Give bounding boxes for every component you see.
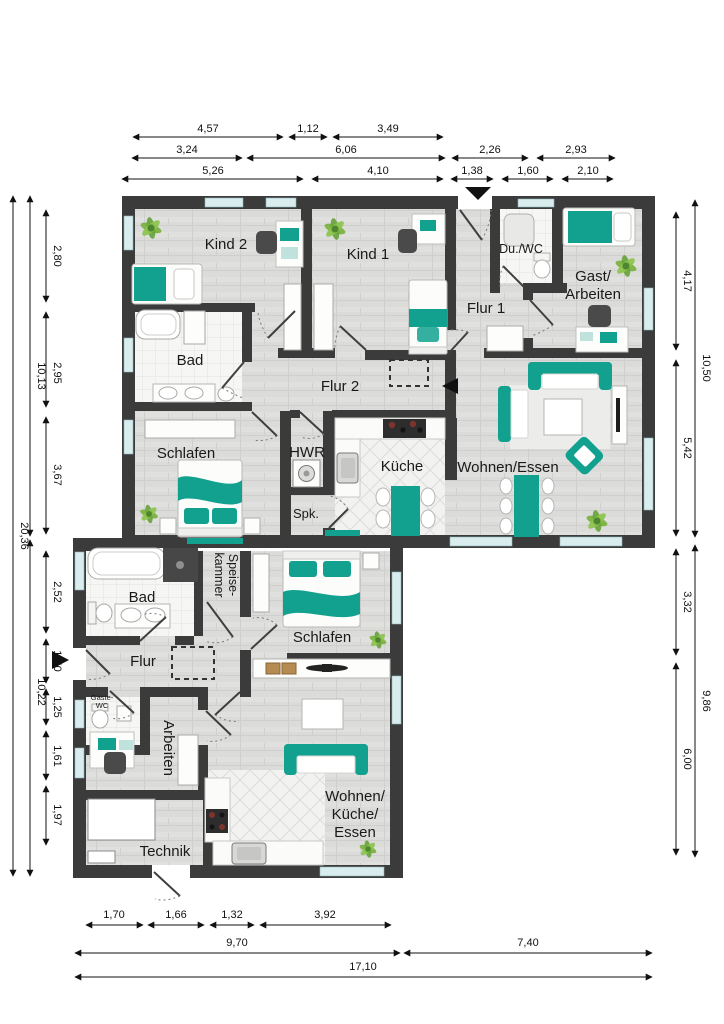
dim-label: 9,86 [700,690,712,711]
dim-label: 1,66 [165,909,186,921]
dim-label: 1,25 [51,696,63,717]
dim-label: 3,49 [377,123,398,135]
kind1-bed [409,280,447,354]
label-duwc: Du./WC [499,242,543,256]
dim-label: 20,36 [18,522,30,550]
label-gast-2: Arbeiten [565,286,621,303]
label-schlafen-upper: Schlafen [157,445,215,462]
label-flur1: Flur 1 [467,300,505,317]
label-kueche: Küche [381,458,424,475]
dim-label: 2,52 [51,581,63,602]
label-schlafen-lower: Schlafen [293,629,351,646]
label-speise-2: kammer [212,552,226,597]
dim-label: 1,97 [51,804,63,825]
dim-label: 1,50 [51,650,63,671]
entrance-arrow-icon [465,187,491,200]
sideboard-tv [253,659,390,678]
gast-bed [563,208,635,246]
label-speise-1: Speise- [226,554,240,596]
dim-label: 1,32 [221,909,242,921]
dim-label: 3,24 [176,144,197,156]
dining-table [514,475,539,537]
wardrobe [487,326,523,351]
dim-label: 3,92 [314,909,335,921]
label-kind1: Kind 1 [347,246,390,263]
wardrobe [284,284,301,350]
label-bad-upper: Bad [177,352,204,369]
label-arbeiten: Arbeiten [160,720,177,776]
dim-label: 3,67 [51,464,63,485]
dim-label: 4,17 [681,270,693,291]
dim-label: 1,70 [103,909,124,921]
dim-label: 2,10 [577,165,598,177]
dining-table [391,486,420,536]
floor-plan: Kind 2 Kind 1 Du./WC Gast/ Arbeiten Flur… [0,0,724,1024]
label-wohnen-essen: Wohnen/Essen [457,459,558,476]
label-kind2: Kind 2 [205,236,248,253]
label-hwr: HWR [289,444,325,461]
dim-label: 1,12 [297,123,318,135]
dim-label: 4,10 [367,165,388,177]
dim-label: 17,10 [349,961,377,973]
dim-label: 9,70 [226,937,247,949]
dim-label: 1,60 [517,165,538,177]
wardrobe [145,420,235,438]
wardrobe [314,284,333,350]
washing-machine [293,460,320,487]
label-flur2: Flur 2 [321,378,359,395]
label-wke-2: Küche/ [332,806,380,823]
dim-label: 1,38 [461,165,482,177]
dim-label: 6,06 [335,144,356,156]
dim-label: 3,32 [681,591,693,612]
label-wke-3: Essen [334,824,376,841]
label-gast-1: Gast/ [575,268,612,285]
label-technik: Technik [140,843,191,860]
dim-label: 10,22 [35,678,47,706]
kind2-bed [132,264,202,304]
dim-label: 2,80 [51,245,63,266]
dim-label: 2,93 [565,144,586,156]
label-bad-lower: Bad [129,589,156,606]
tv [616,398,620,432]
dim-label: 2,26 [479,144,500,156]
wardrobe [253,554,269,612]
floor-plan-page: Kind 2 Kind 1 Du./WC Gast/ Arbeiten Flur… [0,0,724,1024]
dim-label: 2,95 [51,362,63,383]
dim-label: 5,42 [681,437,693,458]
dim-label: 5,26 [202,165,223,177]
dim-label: 6,00 [681,748,693,769]
dim-label: 10,50 [700,354,712,382]
dim-label: 1,61 [51,745,63,766]
label-flur: Flur [130,653,156,670]
label-gaeste-wc-2: WC [96,701,109,710]
dim-label: 10,13 [35,362,47,390]
label-spk: Spk. [293,506,319,521]
dim-label: 7,40 [517,937,538,949]
label-wke-1: Wohnen/ [325,788,386,805]
dim-label: 4,57 [197,123,218,135]
